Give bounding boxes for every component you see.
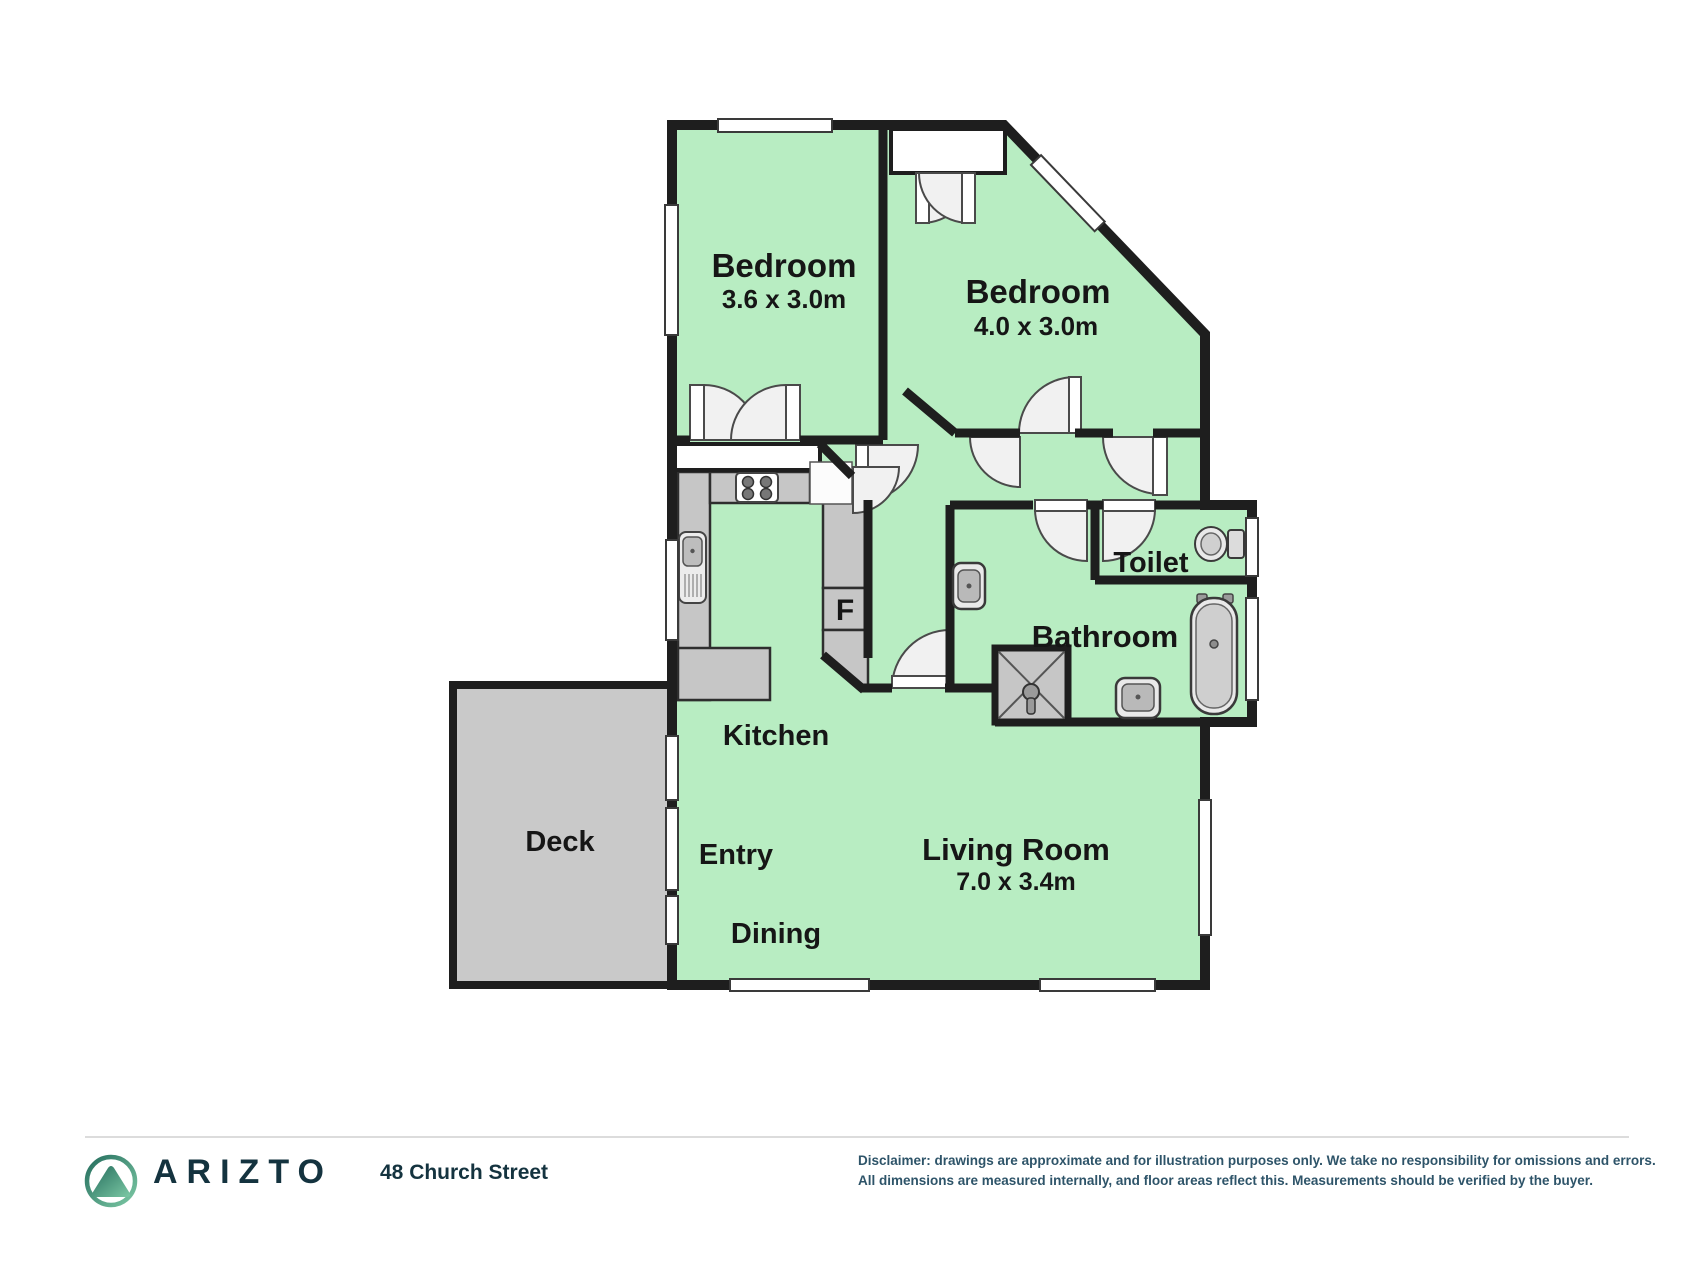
floorplan-drawing: Bedroom 3.6 x 3.0m Bedroom 4.0 x 3.0m To…: [0, 0, 1707, 1280]
room-label-bedroom-2: Bedroom: [966, 273, 1111, 310]
bathtub-fixture: [1191, 594, 1237, 714]
disclaimer-text: Disclaimer: drawings are approximate and…: [858, 1151, 1658, 1191]
wardrobe-bedroom-1: [674, 444, 820, 470]
room-label-entry: Entry: [699, 839, 773, 871]
shower-fixture: [995, 648, 1068, 722]
stove-fixture: [736, 473, 778, 502]
fridge-label: F: [836, 594, 854, 627]
room-dims-bedroom-2: 4.0 x 3.0m: [974, 311, 1098, 341]
wardrobe-bedroom-2: [891, 129, 1005, 173]
room-label-bedroom-1: Bedroom: [712, 247, 857, 284]
floorplan-page: Bedroom 3.6 x 3.0m Bedroom 4.0 x 3.0m To…: [0, 0, 1707, 1280]
room-label-living-room: Living Room: [922, 832, 1110, 867]
room-label-deck: Deck: [525, 826, 595, 858]
room-label-toilet: Toilet: [1113, 547, 1189, 579]
room-label-dining: Dining: [731, 918, 821, 950]
arizto-logo-icon: [82, 1152, 140, 1210]
bathroom-sink-lower: [1116, 678, 1160, 718]
property-address: 48 Church Street: [380, 1161, 548, 1185]
toilet-fixture: [1195, 527, 1244, 561]
brand-name: ARIZTO: [153, 1153, 333, 1192]
disclaimer-line-2: All dimensions are measured internally, …: [858, 1171, 1658, 1191]
room-dims-living-room: 7.0 x 3.4m: [956, 868, 1076, 896]
room-label-bathroom: Bathroom: [1032, 619, 1178, 654]
disclaimer-line-1: Disclaimer: drawings are approximate and…: [858, 1151, 1658, 1171]
bathroom-sink-upper: [953, 563, 985, 609]
room-dims-bedroom-1: 3.6 x 3.0m: [722, 284, 846, 314]
kitchen-sink-fixture: [679, 532, 706, 603]
room-label-kitchen: Kitchen: [723, 720, 829, 752]
mountain-icon: [92, 1166, 130, 1197]
footer-divider: [85, 1136, 1629, 1138]
